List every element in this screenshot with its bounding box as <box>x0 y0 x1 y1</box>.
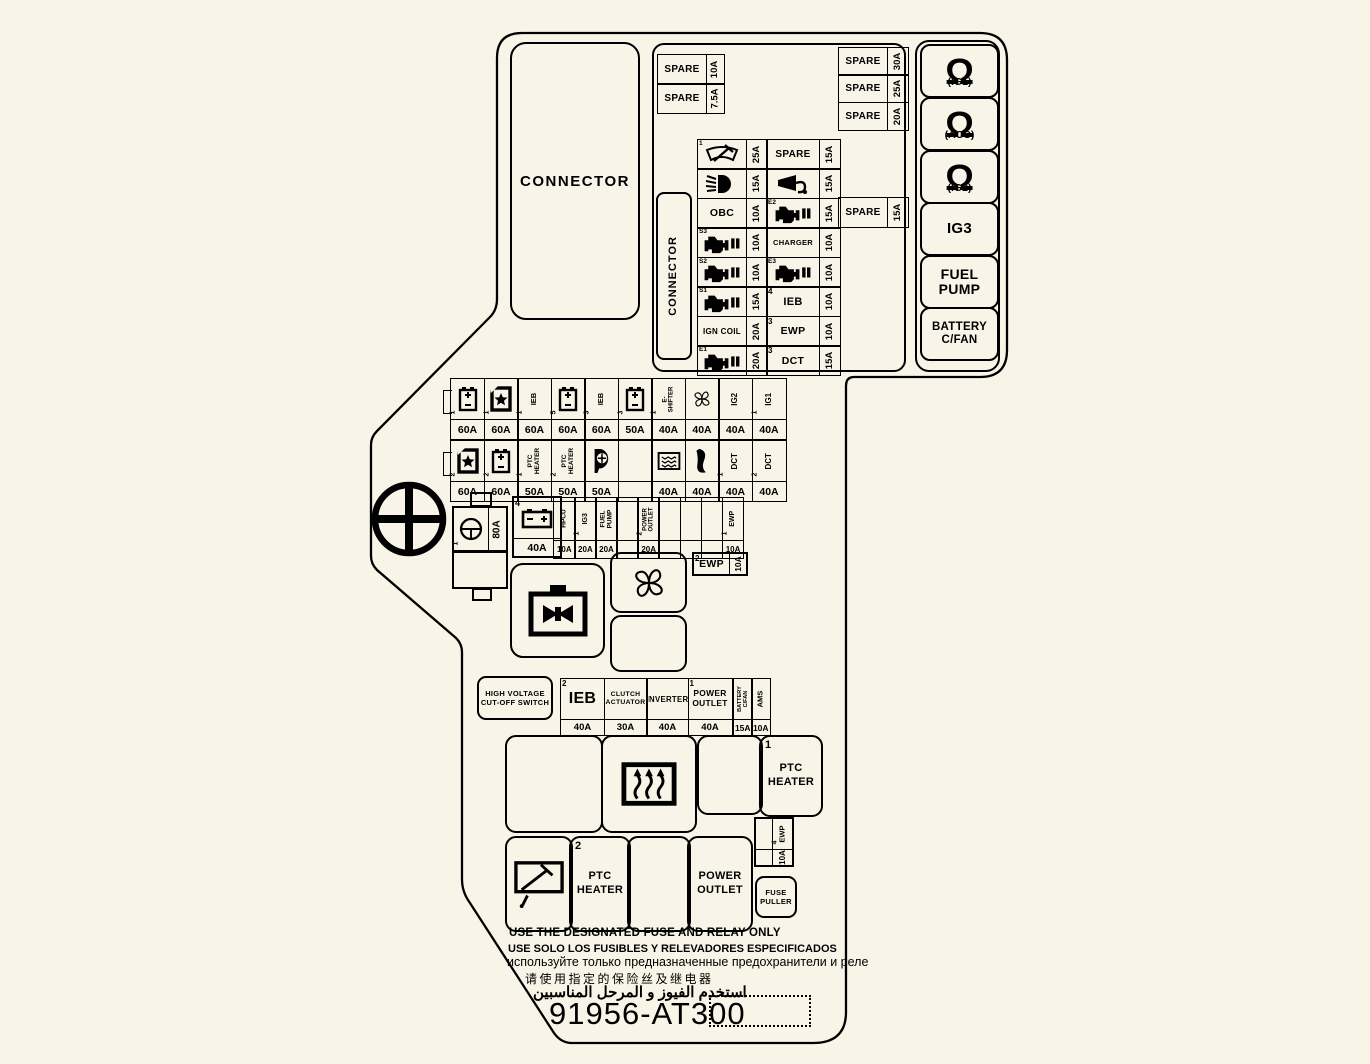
fuse-amp: 60A <box>451 420 484 439</box>
row2-tab <box>443 452 452 476</box>
fuse-cell: 40A <box>685 440 720 502</box>
battery-star-icon <box>489 385 513 413</box>
engine-icon <box>702 350 742 372</box>
connector-label: CONNECTOR <box>520 173 630 190</box>
fuse-amp: 60A <box>585 420 618 439</box>
fuse-amp: 40A <box>647 720 688 735</box>
row1-tab <box>443 390 452 414</box>
fuse-amp: 10A <box>819 286 841 317</box>
fuse-cell-label: BATTERYC/FAN <box>734 679 752 720</box>
ig-relay-box: Ω(IG2) <box>920 150 999 204</box>
battery-icon <box>456 385 480 413</box>
fuse-cell: DCT140A <box>718 440 753 502</box>
fuse-amp: 50A <box>619 420 652 439</box>
fuse-cell-symbol <box>652 441 685 482</box>
spare-fuse-row: SPARE7.5A <box>657 85 725 115</box>
ptc-heater-icon <box>621 759 677 809</box>
fuse-cell: E2 <box>766 198 820 229</box>
fusible-link-80a: 180A <box>452 506 508 552</box>
fusible-link-tab-bottom <box>472 588 492 601</box>
notice-russian: используйте только предназначенные предо… <box>507 955 868 969</box>
fuse-cell <box>658 497 681 559</box>
fuse-cell: 1 <box>697 139 747 170</box>
fuse-cell: 2IEB40A <box>560 678 605 736</box>
spare-fuse-row: SPARE25A <box>838 76 909 104</box>
fuse-cell: IG3120A <box>574 497 597 559</box>
blower-icon <box>590 447 614 475</box>
big-relay-box <box>505 735 603 833</box>
fuse-cell: DCT240A <box>752 440 787 502</box>
fuse-cell-label: AMS <box>752 679 770 720</box>
spare-label: SPARE <box>657 83 707 114</box>
fuse-cell <box>616 497 639 559</box>
fuse-cell: PTCHEATER250A <box>551 440 586 502</box>
spare-label: SPARE <box>657 54 707 85</box>
spare-fuse-block-right: SPARE30ASPARE25ASPARE20A <box>838 48 909 131</box>
ewp4-main: EWP410A <box>773 819 792 865</box>
fuse-cell-symbol: IG31 <box>575 498 596 541</box>
fuse-grid-row: IGN COIL20AEWP310A <box>697 317 841 347</box>
battery-icon <box>556 385 580 413</box>
fusible-link-empty <box>452 551 508 589</box>
spare-amp: 15A <box>887 197 909 228</box>
fuse-amp: 15A <box>819 168 841 199</box>
fuse-cell: INVERTER40A <box>646 678 689 736</box>
fan-icon <box>627 561 671 605</box>
fuse-cell-symbol: 4 <box>514 498 560 539</box>
fuse-strip: HPCU10AIG3120AFUELPUMP20APOWEROUTLET220A… <box>553 497 743 559</box>
fuse-cell: CLUTCHACTUATOR30A <box>604 678 648 736</box>
ewp4-label: EWP4 <box>773 819 792 850</box>
fuse-amp: 40A <box>719 420 752 439</box>
fuse-cell: AMS10A <box>751 678 771 736</box>
connector-box: CONNECTOR <box>510 42 640 320</box>
fuse-amp: 10A <box>746 198 768 229</box>
spare-fuse-row: SPARE10A <box>657 55 725 85</box>
big-relay-box <box>505 836 573 932</box>
fuse-cell <box>680 497 703 559</box>
fuse-cell: 160A <box>450 378 485 440</box>
fuse-cell: SPARE <box>766 139 820 170</box>
fusible-link-tab-top <box>470 492 492 507</box>
fuse-row-1: 160A160AIEB160A560AIEB360A350AE-SHIFTER1… <box>450 378 785 440</box>
fuse-amp: 40A <box>561 720 604 735</box>
fuse-cell: 1POWEROUTLET40A <box>688 678 733 736</box>
spare-label: SPARE <box>838 102 888 131</box>
fuse-amp: 20A <box>746 345 768 376</box>
spare-label: SPARE <box>838 74 888 103</box>
big-relay-box: POWEROUTLET <box>687 836 753 932</box>
fuse-amp: 40A <box>753 420 786 439</box>
battery-positive-terminal-icon <box>369 479 449 559</box>
fuse-cell: S1 <box>697 286 747 317</box>
fuse-amp: 10A <box>819 316 841 347</box>
fuse-amp: 10A <box>819 257 841 288</box>
fuse-cell: PTCHEATER150A <box>517 440 552 502</box>
fuse-cell-symbol: 1 <box>451 379 484 420</box>
fuse-grid-row: E120ADCT315A <box>697 347 841 377</box>
fuse-amp: 10A <box>819 227 841 258</box>
fuse-cell: 350A <box>618 378 653 440</box>
fan-icon <box>690 385 714 413</box>
fuse-cell-symbol: EWP1 <box>723 498 744 541</box>
fuse-amp: 40A <box>689 720 732 735</box>
fuse-amp: 20A <box>575 541 596 558</box>
fuse-cell: IG240A <box>718 378 753 440</box>
big-relay-box <box>697 735 763 815</box>
spare-label: SPARE <box>838 197 888 228</box>
ewp4-spacer-bottom <box>756 850 772 865</box>
fuse-grid-row: S210AE310A <box>697 258 841 288</box>
fuse-cell-label: CLUTCHACTUATOR <box>605 679 647 720</box>
ewp4-spacer <box>756 819 773 865</box>
fuse-cell: IEB160A <box>517 378 552 440</box>
fuse-cell-symbol: 5 <box>552 379 585 420</box>
fuse-cell-symbol: IEB1 <box>518 379 551 420</box>
relay-box-fan <box>610 552 687 613</box>
ig-relay-box: IG3 <box>920 202 999 256</box>
ewp4-spacer-top <box>756 819 772 850</box>
fuse-amp: 15A <box>819 139 841 170</box>
fuse-cell: E-SHIFTER140A <box>651 378 686 440</box>
fuse-amp: 40A <box>686 420 719 439</box>
fuse-cell-symbol <box>585 441 618 482</box>
fuse-amp: 40A <box>753 482 786 501</box>
heater-curve-icon <box>690 447 714 475</box>
big-relay-box: 1PTCHEATER <box>759 735 823 817</box>
fuse-cell-symbol: IG2 <box>719 379 752 420</box>
horn-icon <box>771 173 815 195</box>
ig-relay-box: Ω(IG1) <box>920 44 999 98</box>
fusible-link-amp: 80A <box>488 508 506 550</box>
fuse-amp: 30A <box>605 720 647 735</box>
spare-fuse-block-left: SPARE10ASPARE7.5A <box>657 55 725 114</box>
relay-box-coolant <box>510 563 605 658</box>
fuse-cell-symbol <box>686 441 719 482</box>
fuse-cell-symbol <box>617 498 638 541</box>
battery-icon <box>623 385 647 413</box>
spare-fuse-row: SPARE20A <box>838 103 909 131</box>
high-voltage-cutoff-switch: HIGH VOLTAGE CUT-OFF SWITCH <box>477 676 553 720</box>
rear-wiper-icon <box>511 859 567 909</box>
fuse-cell-symbol: 1 <box>485 379 518 420</box>
connector-vertical-label: CONNECTOR <box>668 236 680 316</box>
fuse-cell: 40A <box>685 378 720 440</box>
battery-icon <box>489 447 513 475</box>
fuse-cell: E3 <box>766 257 820 288</box>
fuse-cell-symbol: E-SHIFTER1 <box>652 379 685 420</box>
fuse-cell: BATTERYC/FAN15A <box>733 678 753 736</box>
engine-icon <box>702 232 742 254</box>
wiper-icon <box>702 143 742 165</box>
fuse-amp: 10A <box>746 227 768 258</box>
fuse-row-2: 260A260APTCHEATER150APTCHEATER250A50A40A… <box>450 440 785 502</box>
fuse-amp: 60A <box>518 420 551 439</box>
fuse-cell-symbol <box>619 441 652 482</box>
ig-relay-box: BATTERYC/FAN <box>920 307 999 361</box>
fusible-link-symbol: 1 <box>454 508 488 550</box>
fuse-cell: IG1140A <box>752 378 787 440</box>
ewp2-fuse: EWP210A <box>692 552 748 576</box>
fuse-grid-row: OBC10AE215A <box>697 199 841 229</box>
relay-fuse-grid: 125ASPARE15A15A15AOBC10AE215AS310ACHARGE… <box>697 140 841 376</box>
big-relay-box <box>627 836 691 932</box>
spare-label: SPARE <box>838 47 888 76</box>
engine-icon <box>702 261 742 283</box>
big-relay-box: 2PTCHEATER <box>569 836 631 932</box>
fuse-cell-symbol: POWEROUTLET2 <box>638 498 659 541</box>
hv-line2: CUT-OFF SWITCH <box>481 698 549 707</box>
fuse-amp: 40A <box>652 420 685 439</box>
fuse-amp: 60A <box>552 420 585 439</box>
fuse-cell: 50A <box>584 440 619 502</box>
fuse-amp: 15A <box>746 286 768 317</box>
fuse-cell-symbol: IEB3 <box>585 379 618 420</box>
fuse-cell: POWEROUTLET220A <box>637 497 660 559</box>
fuse-grid-row: S115AIEB410A <box>697 288 841 318</box>
notice-english: USE THE DESIGNATED FUSE AND RELAY ONLY <box>509 927 781 939</box>
fuse-cell-symbol <box>686 379 719 420</box>
fuse-amp: 10A <box>746 257 768 288</box>
battery-cfan-ams-pair: BATTERYC/FAN15AAMS10A <box>733 678 769 736</box>
ewp2-label: EWP2 <box>694 554 729 574</box>
spare-fuse-row: SPARE30A <box>838 48 909 76</box>
fuse-amp: 15A <box>819 345 841 376</box>
fuse-cell-symbol: PTCHEATER2 <box>552 441 585 482</box>
fuse-cell: OBC <box>697 198 747 229</box>
fuse-cell: EWP110A <box>722 497 745 559</box>
steering-icon <box>458 516 484 542</box>
fuse-cell <box>766 168 820 199</box>
ig-relay-box: FUELPUMP <box>920 255 999 309</box>
fuse-cell-label: 2IEB <box>561 679 604 720</box>
fuse-grid-row: 125ASPARE15A <box>697 140 841 170</box>
fuse-amp: 25A <box>746 139 768 170</box>
fuse-cell-symbol: DCT2 <box>753 441 786 482</box>
fuse-cell: EWP3 <box>766 316 820 347</box>
fuse-cell-label: 1POWEROUTLET <box>689 679 732 720</box>
fuse-cell-symbol: 3 <box>619 379 652 420</box>
fuse-amp: 20A <box>746 316 768 347</box>
fuse-cell-symbol: PTCHEATER1 <box>518 441 551 482</box>
ig-relay-box: Ω(ACC) <box>920 97 999 151</box>
fuse-cell-label: INVERTER <box>647 679 688 720</box>
fuse-amp: 15A <box>734 720 752 735</box>
battery-flat-icon <box>520 506 554 530</box>
fuse-cell: S2 <box>697 257 747 288</box>
fuse-cell <box>697 168 747 199</box>
fuse-cell-symbol: 2 <box>451 441 484 482</box>
notice-spanish: USE SOLO LOS FUSIBLES Y RELEVADORES ESPE… <box>508 943 837 955</box>
fuse-cell: 40A <box>651 440 686 502</box>
fuse-cell: 560A <box>551 378 586 440</box>
coolant-icon <box>526 584 590 638</box>
spare-amp: 7.5A <box>706 83 725 114</box>
spare-fuse-row: SPARE15A <box>838 198 909 228</box>
engine-icon <box>702 291 742 313</box>
spare-amp: 30A <box>887 47 909 76</box>
fuse-puller-line1: FUSE <box>765 888 786 897</box>
spare-amp: 25A <box>887 74 909 103</box>
fuse-cell: DCT3 <box>766 345 820 376</box>
fuse-cell: IEB360A <box>584 378 619 440</box>
big-relay-box <box>601 735 697 833</box>
spare-fuse-single: SPARE15A <box>838 198 909 228</box>
fuse-cell: FUELPUMP20A <box>595 497 618 559</box>
relay-box-empty <box>610 615 687 672</box>
fuse-amp: 10A <box>752 720 770 735</box>
fuse-cell: IGN COIL <box>697 316 747 347</box>
connector-vertical-box: CONNECTOR <box>656 192 692 360</box>
ewp2-amp: 10A <box>729 554 746 574</box>
fuse-cell <box>618 440 653 502</box>
fuse-cell: 160A <box>484 378 519 440</box>
fuse-amp: 15A <box>746 168 768 199</box>
fuse-cell: S3 <box>697 227 747 258</box>
spare-amp: 10A <box>706 54 725 85</box>
hv-line1: HIGH VOLTAGE <box>485 689 545 698</box>
blank-dotted-box <box>709 995 811 1027</box>
fuse-cell-symbol: 2 <box>485 441 518 482</box>
engine-icon <box>771 202 815 224</box>
fuse-amp: 40A <box>514 539 560 557</box>
fuse-cell <box>701 497 724 559</box>
fuse-cell: E1 <box>697 345 747 376</box>
ewp4-amp: 10A <box>773 850 792 865</box>
ewp4-fuse: EWP410A <box>754 817 794 867</box>
fuse-cell-symbol <box>659 498 680 541</box>
fuse-amp: 60A <box>485 420 518 439</box>
fuse-cell: CHARGER <box>766 227 820 258</box>
spare-amp: 20A <box>887 102 909 131</box>
battery-fuse-40a: 440A <box>512 496 562 558</box>
headlight-icon <box>702 173 742 195</box>
fuse-cell-symbol <box>681 498 702 541</box>
fuse-cell: IEB4 <box>766 286 820 317</box>
fuse-cell-symbol <box>702 498 723 541</box>
fuse-puller-line2: PULLER <box>760 897 792 906</box>
fuse-cell-symbol: IG11 <box>753 379 786 420</box>
fuse-grid-row: S310ACHARGER10A <box>697 229 841 259</box>
engine-icon <box>771 261 815 283</box>
battery-star-icon <box>456 447 480 475</box>
bottom-fuse-strip: 2IEB40ACLUTCHACTUATOR30AINVERTER40A1POWE… <box>560 678 731 736</box>
fuse-cell-symbol: DCT1 <box>719 441 752 482</box>
fuse-box-label: CONNECTOR CONNECTOR SPARE10ASPARE7.5A SP… <box>0 0 1370 1064</box>
fuse-puller-box: FUSE PULLER <box>755 876 797 918</box>
defrost-icon <box>657 447 681 475</box>
fuse-grid-row: 15A15A <box>697 170 841 200</box>
fuse-cell-symbol: FUELPUMP <box>596 498 617 541</box>
